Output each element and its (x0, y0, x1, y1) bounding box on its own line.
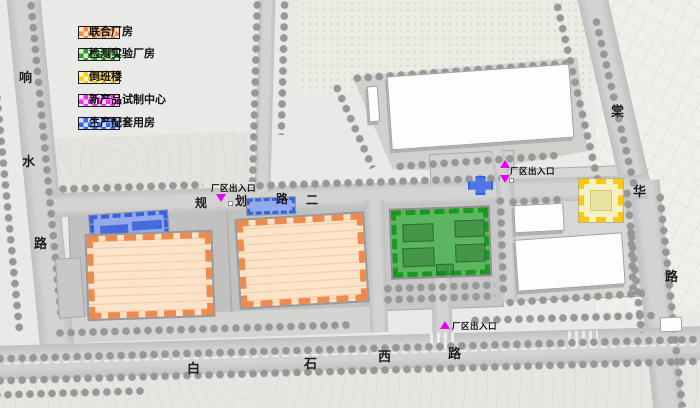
road-label-xiangshui: 响 (19, 71, 32, 84)
lab-block (454, 219, 485, 237)
road-label-xiangshui: 路 (34, 237, 47, 250)
building-joint-factory-b (236, 213, 367, 308)
lab-block (455, 243, 486, 262)
site-plan-map: 厂区出入口 厂区出入口 厂区出入口 响 水 路 棠 华 路 白 石 西 路 规 … (0, 0, 700, 408)
road-label-baishixi: 石 (304, 357, 317, 370)
legend-item-label: 联合厂房 (89, 27, 133, 38)
gate-square-east (509, 178, 514, 183)
legend-item-label: 倒班楼 (89, 72, 122, 83)
shift-dorm-core (590, 190, 612, 211)
road-label-tanghua: 华 (633, 185, 646, 198)
gate-label-east: 厂区出入口 (510, 167, 555, 176)
tree-row (383, 280, 496, 306)
road-label-guihua: 划 (235, 195, 247, 207)
tree-row (626, 228, 638, 290)
road-label-guihua: 路 (276, 193, 288, 205)
gate-label-south: 厂区出入口 (452, 322, 497, 331)
building-support-west-wing (100, 224, 129, 235)
building-corner-small (660, 317, 683, 333)
building-main-plant (387, 64, 575, 151)
lab-block (436, 264, 454, 276)
legend-item-label: 新产品试制中心 (89, 95, 166, 106)
road-label-tanghua: 棠 (611, 105, 624, 118)
tree-row (470, 310, 655, 325)
building-east-small (513, 203, 564, 234)
road-label-guihua: 规 (195, 197, 207, 209)
gate-label-north: 厂区出入口 (211, 184, 256, 193)
tree-row (276, 0, 290, 135)
gate-square-north (228, 201, 233, 206)
legend: 联合厂房 检测实验厂房 倒班楼 新产品试制中心 生产配套用房 (78, 16, 268, 136)
building-west-strip (55, 257, 85, 319)
lab-block (402, 223, 434, 242)
road-label-xiangshui: 水 (22, 155, 35, 168)
building-support-west-wing (132, 220, 163, 231)
lab-block (402, 247, 435, 267)
road-label-baishixi: 路 (448, 347, 461, 360)
building-joint-factory-a (87, 232, 214, 319)
road-label-baishixi: 白 (187, 362, 200, 375)
gate-arrow-south-icon (440, 321, 450, 329)
road-label-tanghua: 路 (665, 270, 678, 283)
legend-item-label: 生产配套用房 (89, 118, 155, 129)
gate-arrow-north-icon (216, 194, 226, 202)
gate-arrow-east-up-icon (500, 160, 510, 168)
building-shift-dorm (579, 179, 623, 222)
road-label-guihua: 二 (306, 194, 318, 206)
building-test-lab (391, 207, 490, 277)
legend-item-label: 检测实验厂房 (89, 49, 155, 60)
road-label-baishixi: 西 (378, 350, 391, 363)
building-east-large (514, 232, 625, 291)
